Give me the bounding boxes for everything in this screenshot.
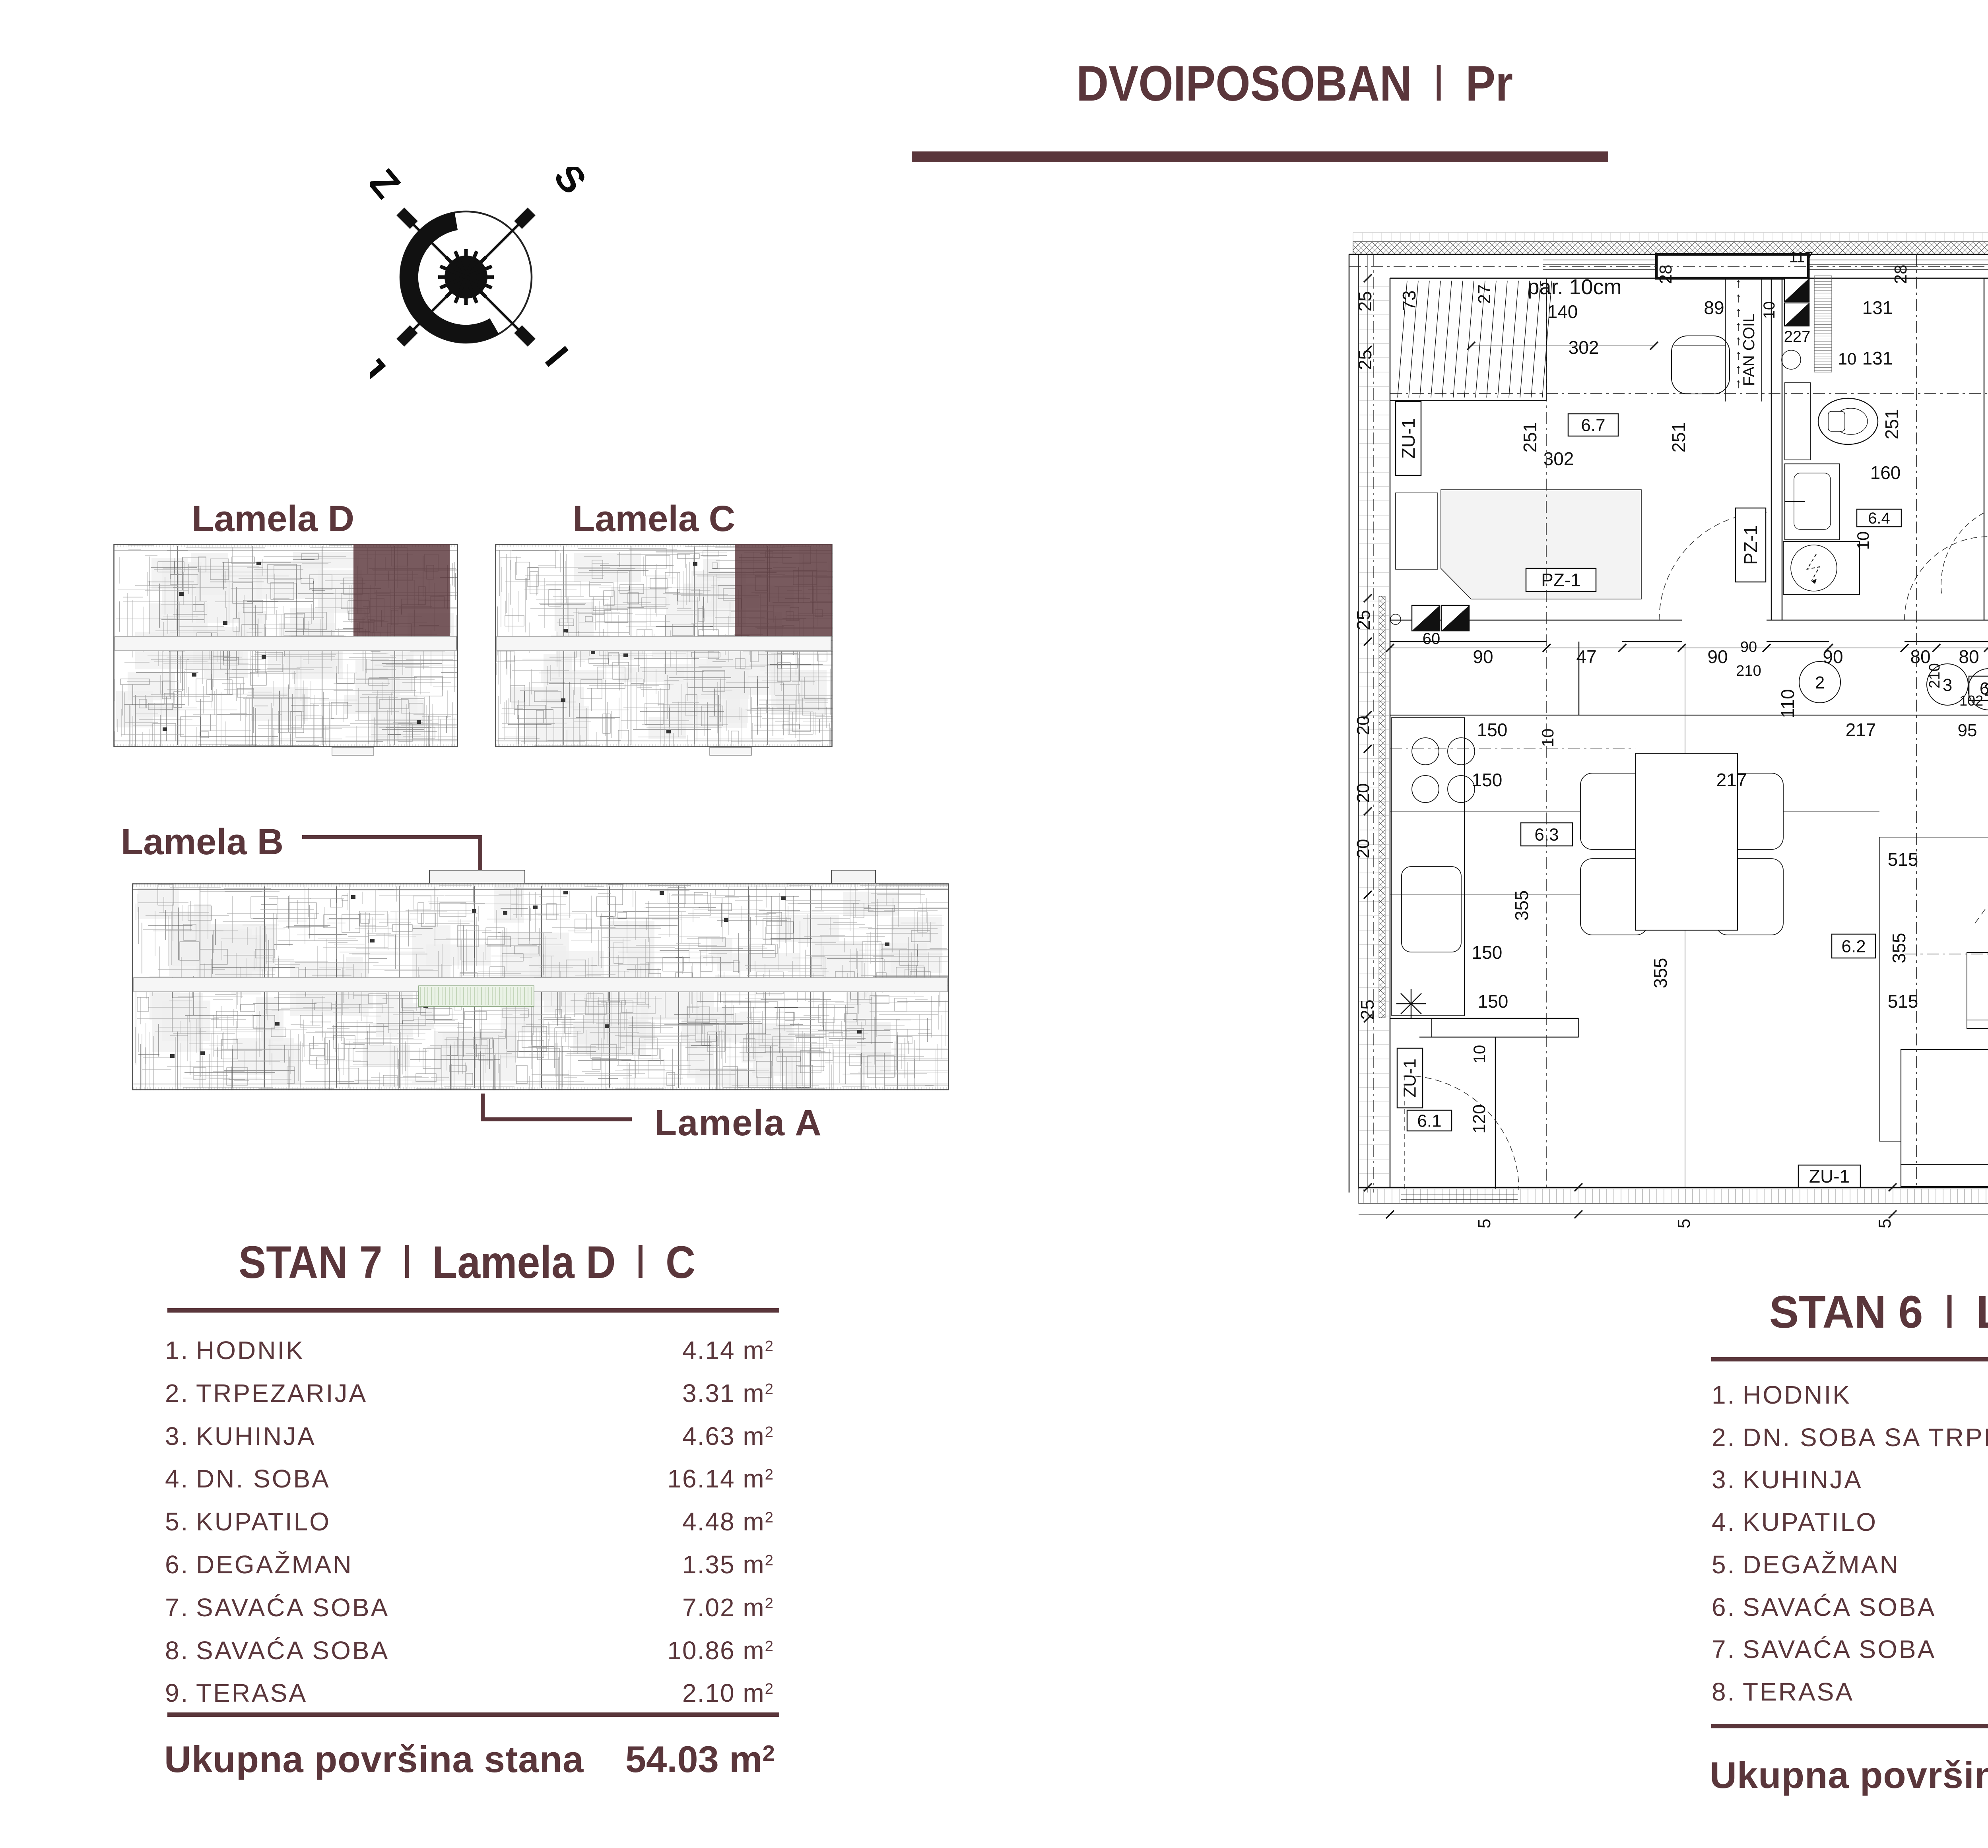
svg-text:355: 355 <box>1511 890 1532 921</box>
svg-text:28: 28 <box>1656 265 1675 284</box>
svg-text:89: 89 <box>1704 297 1724 318</box>
svg-text:par. 10cm: par. 10cm <box>1527 275 1621 299</box>
svg-text:251: 251 <box>1520 422 1540 453</box>
svg-text:6.2: 6.2 <box>1841 937 1866 956</box>
svg-text:10: 10 <box>1470 1045 1489 1064</box>
svg-text:ZU-1: ZU-1 <box>1398 418 1419 459</box>
svg-text:J: J <box>370 347 394 390</box>
svg-text:5: 5 <box>1475 1219 1494 1228</box>
svg-text:131: 131 <box>1862 348 1893 368</box>
svg-text:227: 227 <box>1784 328 1811 345</box>
svg-text:20: 20 <box>1353 716 1373 735</box>
svg-text:6.7: 6.7 <box>1581 415 1605 435</box>
svg-text:6.1: 6.1 <box>1417 1111 1441 1131</box>
svg-text:120: 120 <box>1470 1104 1489 1133</box>
svg-text:150: 150 <box>1472 770 1503 790</box>
svg-text:90: 90 <box>1707 646 1728 667</box>
svg-text:90: 90 <box>1473 646 1493 667</box>
svg-text:2: 2 <box>1815 673 1825 692</box>
svg-text:302: 302 <box>1543 448 1574 469</box>
svg-text:2: 2 <box>1984 680 1988 700</box>
svg-text:PZ-1: PZ-1 <box>1740 525 1761 565</box>
svg-text:10: 10 <box>1838 349 1857 368</box>
svg-text:150: 150 <box>1478 991 1508 1012</box>
svg-text:↑: ↑ <box>1735 276 1742 291</box>
svg-text:140: 140 <box>1547 301 1578 322</box>
svg-text:25: 25 <box>1353 610 1374 630</box>
svg-text:6.4: 6.4 <box>1868 510 1890 527</box>
svg-text:515: 515 <box>1888 849 1918 870</box>
svg-text:25: 25 <box>1357 999 1378 1020</box>
svg-text:102: 102 <box>1959 692 1983 709</box>
svg-text:Z: Z <box>370 167 408 206</box>
svg-text:28: 28 <box>1891 265 1910 284</box>
svg-text:210: 210 <box>1736 663 1761 679</box>
svg-text:60: 60 <box>1423 630 1441 648</box>
svg-text:3: 3 <box>1943 675 1952 695</box>
svg-text:150: 150 <box>1477 719 1508 740</box>
svg-text:10: 10 <box>1538 729 1557 747</box>
svg-text:355: 355 <box>1650 958 1671 989</box>
svg-text:FAN COIL: FAN COIL <box>1740 314 1758 386</box>
svg-text:S: S <box>546 167 592 202</box>
svg-text:I: I <box>537 339 576 374</box>
svg-text:90: 90 <box>1823 646 1843 667</box>
svg-text:90: 90 <box>1740 639 1757 655</box>
svg-text:251: 251 <box>1668 422 1689 453</box>
svg-text:5: 5 <box>1674 1219 1694 1228</box>
svg-text:25: 25 <box>1355 291 1375 311</box>
svg-text:ZU-1: ZU-1 <box>1809 1166 1850 1187</box>
svg-text:515: 515 <box>1888 991 1918 1012</box>
svg-text:6.3: 6.3 <box>1534 825 1559 844</box>
svg-text:80: 80 <box>1959 646 1979 667</box>
svg-text:95: 95 <box>1958 721 1977 740</box>
svg-text:217: 217 <box>1716 770 1747 790</box>
svg-text:160: 160 <box>1870 462 1901 483</box>
svg-text:10: 10 <box>1761 301 1778 319</box>
svg-text:73: 73 <box>1399 290 1419 310</box>
svg-text:↑: ↑ <box>1735 290 1742 305</box>
svg-text:20: 20 <box>1353 783 1373 803</box>
svg-text:251: 251 <box>1881 409 1902 440</box>
svg-text:117: 117 <box>1789 249 1813 266</box>
svg-text:131: 131 <box>1862 297 1893 318</box>
svg-text:150: 150 <box>1472 942 1503 963</box>
svg-text:ZU-1: ZU-1 <box>1400 1059 1420 1098</box>
svg-text:20: 20 <box>1353 839 1373 859</box>
svg-text:355: 355 <box>1889 933 1909 964</box>
svg-text:27: 27 <box>1475 285 1494 304</box>
svg-text:302: 302 <box>1569 337 1599 358</box>
svg-text:217: 217 <box>1846 719 1876 740</box>
svg-text:110: 110 <box>1777 689 1798 718</box>
svg-text:5: 5 <box>1875 1219 1895 1228</box>
svg-text:PZ-1: PZ-1 <box>1541 570 1581 590</box>
svg-text:10: 10 <box>1854 531 1872 550</box>
